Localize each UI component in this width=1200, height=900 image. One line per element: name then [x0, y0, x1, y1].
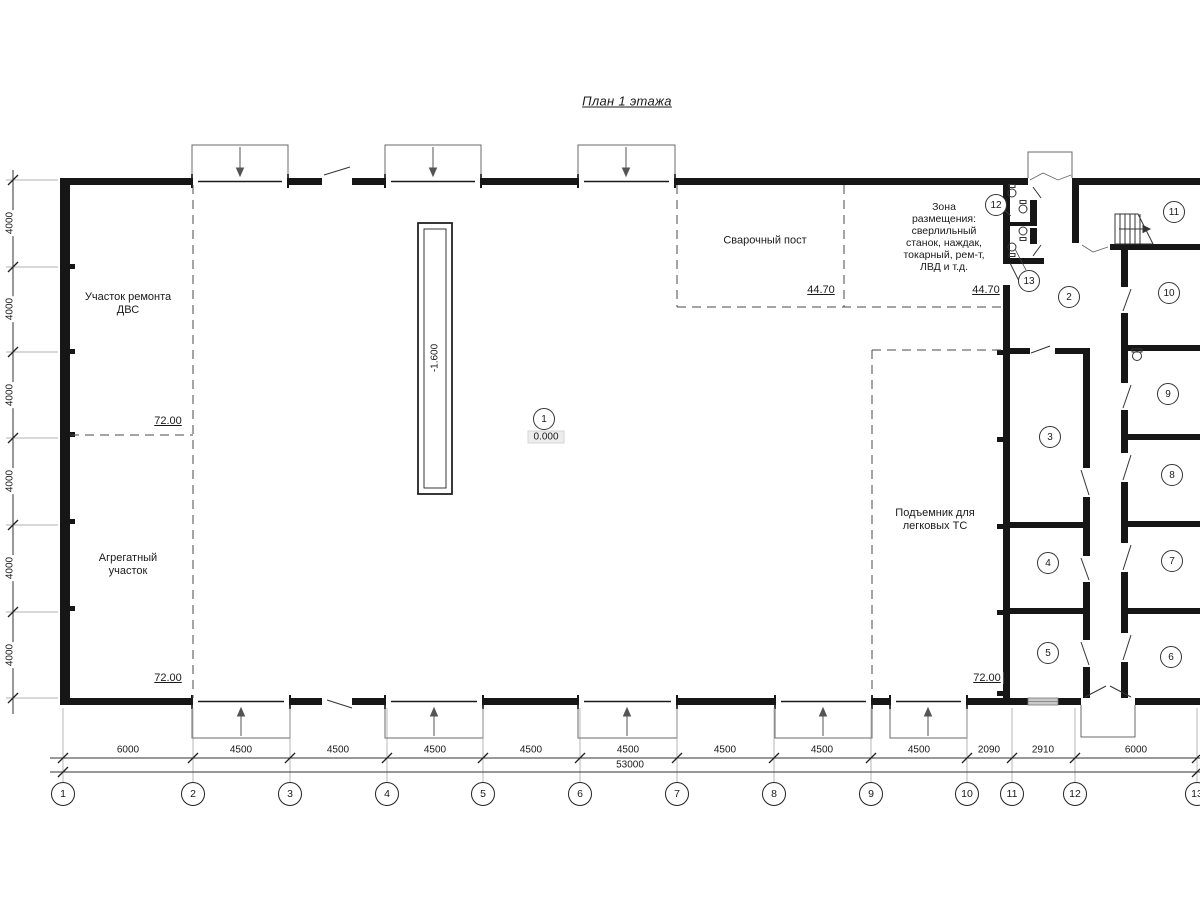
room-callout-3: 3 — [1039, 426, 1061, 448]
dim-bottom-12: 6000 — [1123, 745, 1149, 756]
room-callout-8: 8 — [1161, 464, 1183, 486]
axis-bubble-4: 4 — [375, 782, 399, 806]
room-callout-5: 5 — [1037, 642, 1059, 664]
dim-bottom-2: 4500 — [228, 745, 254, 756]
room-callout-9: 9 — [1157, 383, 1179, 405]
dim-bottom-9: 4500 — [906, 745, 932, 756]
walls — [60, 178, 1200, 705]
dim-bottom-10: 2090 — [976, 745, 1002, 756]
room-callout-6: 6 — [1160, 646, 1182, 668]
sink — [1133, 352, 1142, 361]
axis-bubble-11: 11 — [1000, 782, 1024, 806]
dim-bottom-1: 6000 — [115, 745, 141, 756]
room-label-lift: Подъемник для легковых ТС — [895, 507, 974, 533]
axis-bubble-12: 12 — [1063, 782, 1087, 806]
dim-bottom-3: 4500 — [325, 745, 351, 756]
gate-leaf-lines — [198, 182, 961, 702]
gate-arrows — [237, 147, 932, 736]
dim-bottom-11: 2910 — [1030, 745, 1056, 756]
elevation-dvs: 72.00 — [152, 415, 184, 427]
plan-linework — [0, 0, 1200, 900]
room-callout-10: 10 — [1158, 282, 1180, 304]
window — [1028, 698, 1058, 705]
dim-bottom-8: 4500 — [809, 745, 835, 756]
room-callout-1: 1 — [533, 408, 555, 430]
elevation-tools: 44.70 — [970, 284, 1002, 296]
axis-bubble-7: 7 — [665, 782, 689, 806]
room-callout-13: 13 — [1018, 270, 1040, 292]
room-callout-7: 7 — [1161, 550, 1183, 572]
dim-left-2: 4000 — [5, 296, 16, 322]
dim-bottom-4: 4500 — [422, 745, 448, 756]
drawing-title: План 1 этажа — [582, 94, 672, 109]
dim-left-6: 4000 — [5, 642, 16, 668]
dim-bottom-6: 4500 — [615, 745, 641, 756]
axis-bubble-9: 9 — [859, 782, 883, 806]
dim-bottom-5: 4500 — [518, 745, 544, 756]
axis-bubble-5: 5 — [471, 782, 495, 806]
room-callout-11: 11 — [1163, 201, 1185, 223]
opening-jamb-ticks — [191, 174, 968, 709]
axis-bubble-1: 1 — [51, 782, 75, 806]
gate-outlines — [192, 145, 1135, 738]
floor-plan: План 1 этажа Участок ремонта ДВС 72.00 А… — [0, 0, 1200, 900]
elevation-lift: 72.00 — [971, 672, 1003, 684]
room-callout-12: 12 — [985, 194, 1007, 216]
room-callout-2: 2 — [1058, 286, 1080, 308]
dim-bottom-7: 4500 — [712, 745, 738, 756]
dim-left-5: 4000 — [5, 555, 16, 581]
dim-left-3: 4000 — [5, 382, 16, 408]
room-callout-4: 4 — [1037, 552, 1059, 574]
axis-bubble-10: 10 — [955, 782, 979, 806]
room-label-welding: Сварочный пост — [723, 235, 806, 248]
pit-depth-mark: -1.600 — [430, 341, 441, 375]
elevation-aggregat: 72.00 — [152, 672, 184, 684]
axis-bubble-8: 8 — [762, 782, 786, 806]
floor-level-mark: 0.000 — [527, 431, 564, 444]
room-label-aggregat: Агрегатный участок — [99, 552, 157, 578]
stairs — [1115, 214, 1153, 244]
axis-bubble-2: 2 — [181, 782, 205, 806]
dim-left-1: 4000 — [5, 210, 16, 236]
entrance-vestibule-outline — [1028, 152, 1072, 178]
axis-bubble-3: 3 — [278, 782, 302, 806]
dim-total: 53000 — [614, 760, 646, 771]
room-label-dvs: Участок ремонта ДВС — [85, 291, 171, 317]
axis-bubble-6: 6 — [568, 782, 592, 806]
dimension-ticks — [8, 175, 1200, 777]
dim-left-4: 4000 — [5, 468, 16, 494]
elevation-welding: 44.70 — [805, 284, 837, 296]
room-label-tools: Зона размещения: сверлильный станок, наж… — [903, 201, 984, 273]
extension-lines — [6, 180, 1197, 783]
exit-outline — [1081, 705, 1135, 737]
